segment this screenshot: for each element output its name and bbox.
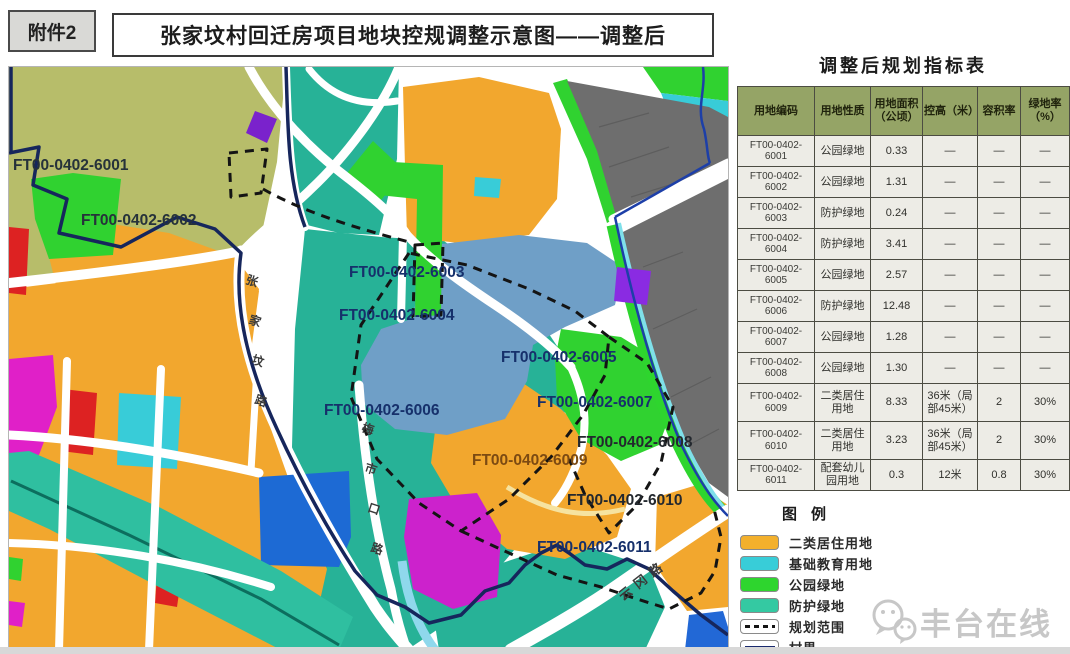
cell-land-use: 公园绿地 [815,322,871,353]
cell-land-code: FT00-0402-6007 [738,322,815,353]
cell-area: 1.28 [871,322,923,353]
table-row: FT00-0402-6011配套幼儿园用地0.312米0.830% [738,460,1070,491]
plot-label: FT00-0402-6009 [472,452,588,469]
cell-green-ratio: 30% [1021,384,1070,422]
page-title: 张家坟村回迁房项目地块控规调整示意图——调整后 [112,13,714,57]
cell-land-use: 公园绿地 [815,167,871,198]
wechat-icon [868,595,920,647]
cell-green-ratio: — [1021,167,1070,198]
cell-green-ratio: 30% [1021,422,1070,460]
table-row: FT00-0402-6003防护绿地0.24——— [738,198,1070,229]
legend-swatch-fill [740,598,779,613]
cell-height-limit: 36米（局部45米） [923,384,978,422]
cell-land-use: 公园绿地 [815,136,871,167]
cell-land-code: FT00-0402-6004 [738,229,815,260]
cell-height-limit: — [923,136,978,167]
attachment-label: 附件2 [8,10,96,52]
cell-area: 0.24 [871,198,923,229]
plot-label: FT00-0402-6003 [349,264,465,281]
legend-item: 基础教育用地 [740,553,1040,574]
cell-green-ratio: — [1021,291,1070,322]
legend-label: 规划范围 [789,617,845,636]
table-row: FT00-0402-6010二类居住用地3.2336米（局部45米）230% [738,422,1070,460]
table-row: FT00-0402-6007公园绿地1.28——— [738,322,1070,353]
cell-height-limit: 36米（局部45米） [923,422,978,460]
cell-land-code: FT00-0402-6011 [738,460,815,491]
table-header-cell: 用地性质 [815,87,871,136]
page: 附件2 张家坟村回迁房项目地块控规调整示意图——调整后 [0,0,1070,654]
legend-label: 基础教育用地 [789,554,873,573]
cell-area: 0.33 [871,136,923,167]
cell-height-limit: — [923,291,978,322]
plot-label: FT00-0402-6005 [501,349,617,366]
watermark: 丰台在线 [868,592,1070,650]
cell-far: — [978,167,1021,198]
table-header-cell: 绿地率（%） [1021,87,1070,136]
parcel-cyan-top [474,177,501,198]
plot-label: FT00-0402-6006 [324,402,440,419]
legend-title: 图例 [782,503,1040,524]
table-row: FT00-0402-6001公园绿地0.33——— [738,136,1070,167]
cell-height-limit: — [923,167,978,198]
cell-green-ratio: 30% [1021,460,1070,491]
cell-land-use: 公园绿地 [815,353,871,384]
table-title: 调整后规划指标表 [737,52,1069,78]
legend-swatch-fill [740,535,779,550]
cell-far: — [978,353,1021,384]
cell-far: — [978,198,1021,229]
cell-land-use: 二类居住用地 [815,384,871,422]
table-row: FT00-0402-6004防护绿地3.41——— [738,229,1070,260]
cell-area: 1.31 [871,167,923,198]
cell-height-limit: — [923,198,978,229]
cell-green-ratio: — [1021,260,1070,291]
cell-land-code: FT00-0402-6002 [738,167,815,198]
cell-land-use: 配套幼儿园用地 [815,460,871,491]
bottom-border [0,647,1070,654]
watermark-text: 丰台在线 [920,599,1052,644]
legend-swatch-fill [740,577,779,592]
legend-swatch-dashed-line [740,619,779,634]
cell-far: 0.8 [978,460,1021,491]
cell-height-limit: — [923,353,978,384]
cell-land-code: FT00-0402-6005 [738,260,815,291]
cell-land-code: FT00-0402-6009 [738,384,815,422]
cell-far: — [978,260,1021,291]
legend-label: 二类居住用地 [789,533,873,552]
table-header-cell: 控高（米） [923,87,978,136]
table-row: FT00-0402-6009二类居住用地8.3336米（局部45米）230% [738,384,1070,422]
cell-land-code: FT00-0402-6003 [738,198,815,229]
plot-label: FT00-0402-6011 [537,539,652,556]
cell-land-use: 防护绿地 [815,229,871,260]
cell-area: 0.3 [871,460,923,491]
cell-land-use: 防护绿地 [815,198,871,229]
cell-area: 2.57 [871,260,923,291]
table-header-cell: 用地面积（公顷） [871,87,923,136]
cell-height-limit: — [923,260,978,291]
cell-far: — [978,229,1021,260]
plot-label: FT00-0402-6002 [81,212,196,229]
cell-area: 12.48 [871,291,923,322]
cell-far: 2 [978,422,1021,460]
cell-height-limit: — [923,229,978,260]
cell-land-code: FT00-0402-6008 [738,353,815,384]
cell-area: 1.30 [871,353,923,384]
plot-label: FT00-0402-6004 [339,307,455,324]
cell-land-code: FT00-0402-6010 [738,422,815,460]
legend-label: 公园绿地 [789,575,845,594]
cell-height-limit: 12米 [923,460,978,491]
legend-label: 防护绿地 [789,596,845,615]
cell-land-use: 公园绿地 [815,260,871,291]
table-row: FT00-0402-6006防护绿地12.48——— [738,291,1070,322]
table-row: FT00-0402-6008公园绿地1.30——— [738,353,1070,384]
cell-area: 3.23 [871,422,923,460]
cell-green-ratio: — [1021,322,1070,353]
cell-land-use: 二类居住用地 [815,422,871,460]
plot-label: FT00-0402-6010 [567,492,682,509]
legend-swatch-fill [740,556,779,571]
table-row: FT00-0402-6002公园绿地1.31——— [738,167,1070,198]
plot-label: FT00-0402-6008 [577,434,693,451]
cell-far: — [978,136,1021,167]
planning-indicator-table: 用地编码用地性质用地面积（公顷）控高（米）容积率绿地率（%） FT00-0402… [737,86,1070,491]
cell-far: — [978,291,1021,322]
cell-green-ratio: — [1021,353,1070,384]
cell-height-limit: — [923,322,978,353]
cell-land-code: FT00-0402-6001 [738,136,815,167]
table-header-row: 用地编码用地性质用地面积（公顷）控高（米）容积率绿地率（%） [738,87,1070,136]
cell-land-use: 防护绿地 [815,291,871,322]
parcel-purple-mid [614,267,651,305]
cell-far: — [978,322,1021,353]
planning-map: FT00-0402-6001FT00-0402-6002FT00-0402-60… [8,66,729,651]
cell-far: 2 [978,384,1021,422]
cell-green-ratio: — [1021,198,1070,229]
legend-item: 二类居住用地 [740,532,1040,553]
table-row: FT00-0402-6005公园绿地2.57——— [738,260,1070,291]
plot-label: FT00-0402-6001 [13,157,129,174]
parcel-green-edge [9,557,23,581]
table-header-cell: 容积率 [978,87,1021,136]
plot-label: FT00-0402-6007 [537,394,652,411]
map-canvas: FT00-0402-6001FT00-0402-6002FT00-0402-60… [9,67,728,650]
cell-green-ratio: — [1021,229,1070,260]
cell-area: 8.33 [871,384,923,422]
cell-land-code: FT00-0402-6006 [738,291,815,322]
table-header-cell: 用地编码 [738,87,815,136]
cell-green-ratio: — [1021,136,1070,167]
cell-area: 3.41 [871,229,923,260]
